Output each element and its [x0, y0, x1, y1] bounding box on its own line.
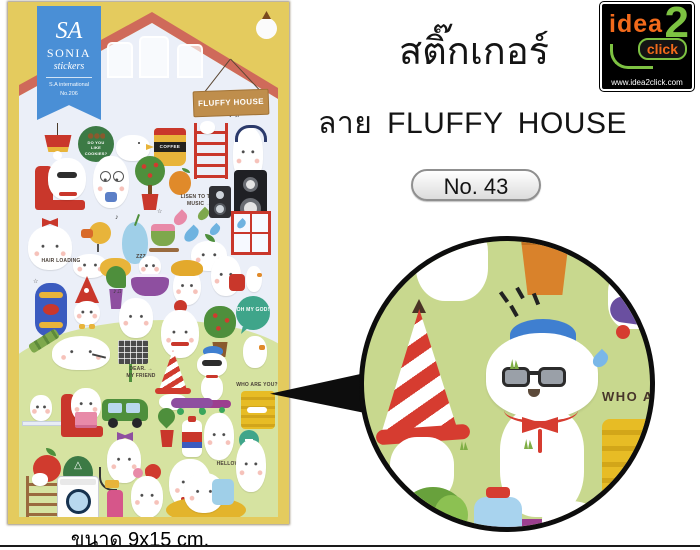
brand-monogram: SA [37, 18, 101, 45]
who-are-you-label: WHO ARE YOU? [231, 382, 278, 389]
bottle-cap [486, 487, 510, 498]
sticker-purple-skateboard [171, 396, 213, 418]
sunglass-bridge [528, 371, 540, 375]
product-page: DO YOU LIKE COOKIES? COFFEE ♪ ♫ [0, 0, 700, 550]
skate-label [43, 304, 59, 315]
sunglasses [202, 360, 222, 366]
blue-pocket [105, 192, 117, 202]
grass-tuft [600, 261, 610, 272]
deck [171, 398, 213, 408]
duck-body [30, 395, 52, 421]
magnifier-circle: WHO ARE [359, 236, 655, 532]
bubble: OH MY GOD! [236, 296, 270, 330]
skate-truck [39, 292, 63, 298]
sheep-body [52, 336, 110, 370]
cup [151, 231, 175, 246]
red-scarf [206, 375, 218, 378]
glasses-lens [113, 171, 124, 182]
music-note: ♪ [115, 214, 119, 221]
flick-mark [515, 287, 524, 299]
red-flower [145, 466, 154, 475]
sticker-glasses-sheep [93, 156, 129, 208]
red-scarf [59, 192, 77, 196]
star-outline: ☆ [33, 278, 38, 285]
headphones [235, 125, 267, 142]
bird-eye [138, 142, 140, 144]
hat-star [84, 288, 89, 293]
omg-label: OH MY GOD! [236, 296, 270, 314]
sticker-window-frame [231, 211, 271, 255]
bubble-tail [241, 327, 249, 334]
logo-idea-text: idea [609, 10, 663, 39]
wheel [199, 408, 206, 415]
hanger-glyph: △ [63, 456, 93, 476]
wheel [108, 418, 118, 428]
fluffy-house-sign: FLUFFY HOUSE [193, 89, 270, 118]
tree-trunk [148, 185, 152, 195]
bicycle-basket [118, 340, 148, 364]
speaker-cone [214, 203, 226, 215]
speaker-cone [216, 191, 224, 199]
sticker-bathtub-sheep [131, 256, 169, 300]
red-pot [159, 430, 175, 447]
yellow-wig [171, 260, 203, 276]
ribbon-sub2: No.206 [37, 90, 101, 99]
duck-beak [259, 345, 265, 350]
sticker-shelf-duck [22, 393, 62, 443]
tree-foliage [135, 156, 165, 186]
sheep-body [74, 301, 100, 325]
sunglass-lens [502, 367, 530, 387]
house-window [177, 44, 203, 78]
window-drop [235, 218, 247, 230]
page-subtitle: ลาย FLUFFY HOUSE [300, 100, 645, 147]
cookie-dots [87, 132, 105, 140]
brand-ribbon: SA SONIA stickers S.A international No.2… [37, 6, 101, 120]
sticker-small-speaker [209, 186, 231, 218]
sticker-gnome-sheep [72, 276, 102, 330]
mag-duck [542, 501, 600, 532]
scarf-string [504, 397, 578, 424]
shelf [22, 421, 62, 426]
flick-mark [499, 291, 509, 303]
sticker-teacup [149, 220, 179, 260]
duck-beak [257, 273, 262, 277]
sticker-yellow-box [241, 391, 275, 429]
tree-foliage [204, 306, 236, 338]
shelf [149, 248, 179, 252]
sticker-sunglasses-sheep-chair [35, 156, 89, 216]
sheep-body [131, 476, 163, 517]
brand-name: SONIA [37, 46, 101, 61]
spray-body [107, 490, 123, 517]
sticker-sheet-photo: DO YOU LIKE COOKIES? COFFEE ♪ ♫ [8, 2, 289, 524]
hair-loading-label: HAIR LOADING [36, 258, 86, 265]
mag-yellow-box [602, 419, 655, 532]
coffee-pot-label: COFFEE [154, 142, 186, 152]
flick-mark [532, 293, 540, 306]
spray-nozzle [105, 480, 119, 488]
pink-book [75, 412, 97, 428]
sticker-omg-bubble: OH MY GOD! [236, 296, 270, 334]
ladder-sheep [200, 121, 215, 134]
plant-leaves [106, 266, 126, 288]
sticker-red-ladder [194, 123, 228, 179]
glasses-lens [100, 171, 111, 182]
scarf-tail [538, 429, 542, 453]
duck-eye [582, 511, 585, 514]
sunglass-lens [538, 367, 566, 387]
logo-url: www.idea2click.com [602, 78, 692, 87]
sticker-apple-tree [132, 156, 168, 216]
house-window [107, 42, 133, 78]
car-window [108, 403, 122, 413]
mag-who-are-text: WHO ARE [602, 389, 655, 404]
sunglasses [57, 172, 77, 178]
washer-door [66, 489, 91, 514]
bone [247, 407, 267, 413]
wheel [132, 418, 142, 428]
dryer-nozzle [81, 229, 93, 238]
number-badge: No. 43 [411, 169, 541, 201]
sticker-flower-sheep [127, 468, 167, 517]
cookie-bubble-label: DO YOU LIKE COOKIES? [78, 126, 114, 156]
sticker-green-car [102, 391, 148, 431]
bottle-cap [188, 416, 196, 422]
mag-orange-pot [514, 236, 576, 295]
lantern [256, 18, 277, 39]
speaker-cone [243, 177, 258, 192]
car-window [126, 403, 140, 413]
control-panel [60, 479, 96, 485]
ribbon-divider [46, 77, 92, 78]
page-title-thai: สติ๊กเกอร์ [314, 20, 634, 81]
star-outline: ☆ [157, 208, 162, 215]
house-window [139, 36, 169, 78]
blue-towel [212, 479, 234, 505]
sticker-spray-bottle [103, 476, 127, 517]
sticker-cola-bottle [182, 420, 202, 457]
sticker-rug-sheep [166, 473, 246, 517]
sticker-duck-on-hill [243, 336, 267, 368]
lamp-shade [42, 135, 74, 152]
wheel [177, 408, 184, 415]
bush-highlight [434, 495, 468, 532]
idea2click-logo: idea 2 click www.idea2click.com [600, 2, 694, 91]
bathtub [131, 274, 169, 296]
coffee-pot-lid [154, 128, 186, 135]
red-item [229, 274, 245, 291]
lamp-cord [57, 123, 58, 136]
logo-click-text: click [638, 38, 687, 60]
ribbon-sub1: S.A international [37, 81, 101, 90]
sheep-body [119, 298, 153, 338]
striped-cone [159, 350, 187, 390]
mag-bottle [474, 497, 522, 532]
pink-flower [133, 468, 143, 478]
striped-cone [382, 309, 458, 431]
ladder-sheep [32, 473, 48, 486]
sticker-lying-sheep [52, 328, 114, 374]
mag-skate-wheel [616, 325, 630, 339]
mag-striped-cone-character [382, 299, 478, 513]
bottom-divider-line [0, 545, 700, 547]
bone [614, 481, 652, 491]
red-scarf [171, 342, 189, 346]
flick-mark [509, 305, 518, 317]
sticker-small-duck [246, 266, 262, 292]
music-notes: ♪♫ [113, 288, 122, 295]
sticker-orange [169, 171, 191, 195]
sticker-hair-dryer [81, 220, 111, 252]
sticker-washing-machine [57, 476, 99, 517]
chair-seat [35, 200, 85, 210]
brand-type: stickers [37, 61, 101, 72]
